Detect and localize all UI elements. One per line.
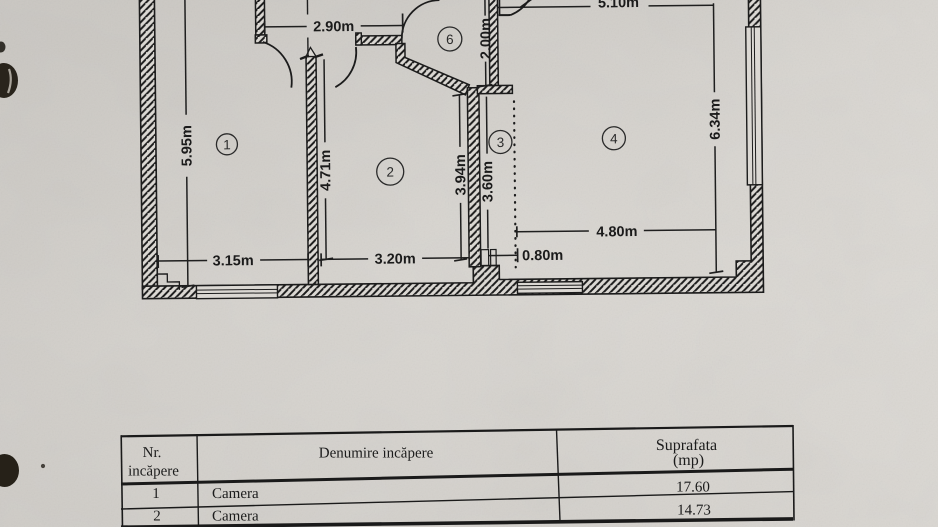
svg-text:1: 1 bbox=[223, 137, 231, 152]
svg-text:3.94m: 3.94m bbox=[453, 154, 469, 195]
svg-text:Camera: Camera bbox=[212, 486, 259, 502]
svg-text:4: 4 bbox=[610, 131, 618, 146]
svg-text:3.20m: 3.20m bbox=[374, 251, 415, 267]
svg-text:4.71m: 4.71m bbox=[318, 150, 334, 191]
svg-text:17.60: 17.60 bbox=[676, 479, 710, 495]
svg-text:3: 3 bbox=[497, 135, 505, 150]
svg-text:2: 2 bbox=[153, 508, 161, 524]
svg-text:5.95m: 5.95m bbox=[179, 125, 195, 166]
svg-text:0.80m: 0.80m bbox=[522, 248, 563, 264]
svg-text:3.15m: 3.15m bbox=[213, 253, 254, 269]
svg-text:3.60m: 3.60m bbox=[480, 161, 496, 202]
svg-text:2: 2 bbox=[386, 165, 394, 180]
svg-text:Denumire incăpere: Denumire incăpere bbox=[319, 446, 434, 462]
svg-text:6.34m: 6.34m bbox=[707, 99, 723, 140]
svg-text:5.10m: 5.10m bbox=[598, 0, 639, 11]
svg-text:Nr.: Nr. bbox=[143, 445, 162, 461]
svg-text:2.90m: 2.90m bbox=[313, 19, 354, 35]
svg-text:(mp): (mp) bbox=[673, 452, 704, 469]
svg-text:Camera: Camera bbox=[212, 508, 259, 524]
svg-text:2.00m: 2.00m bbox=[478, 18, 494, 59]
svg-text:4.80m: 4.80m bbox=[596, 224, 637, 240]
svg-text:6: 6 bbox=[446, 32, 454, 47]
svg-text:incăpere: incăpere bbox=[128, 464, 179, 480]
svg-text:14.73: 14.73 bbox=[677, 503, 711, 519]
svg-text:1: 1 bbox=[152, 486, 160, 502]
